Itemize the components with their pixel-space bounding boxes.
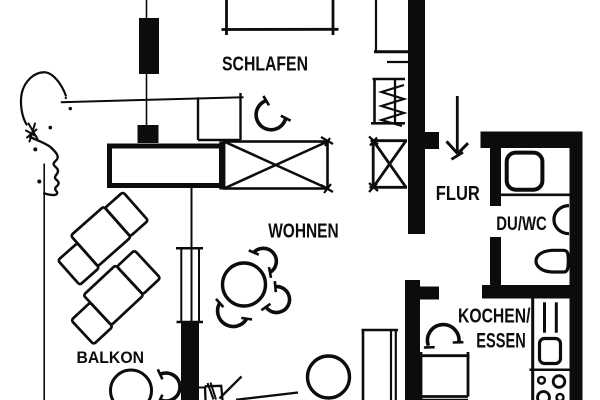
svg-text:BALKON: BALKON [77, 349, 145, 367]
svg-text:ESSEN: ESSEN [476, 329, 526, 352]
svg-text:WOHNEN: WOHNEN [268, 221, 339, 243]
svg-text:KOCHEN/: KOCHEN/ [458, 304, 531, 327]
svg-text:FLUR: FLUR [436, 182, 480, 205]
svg-text:DU/WC: DU/WC [496, 213, 547, 235]
svg-text:SCHLAFEN: SCHLAFEN [222, 53, 308, 75]
